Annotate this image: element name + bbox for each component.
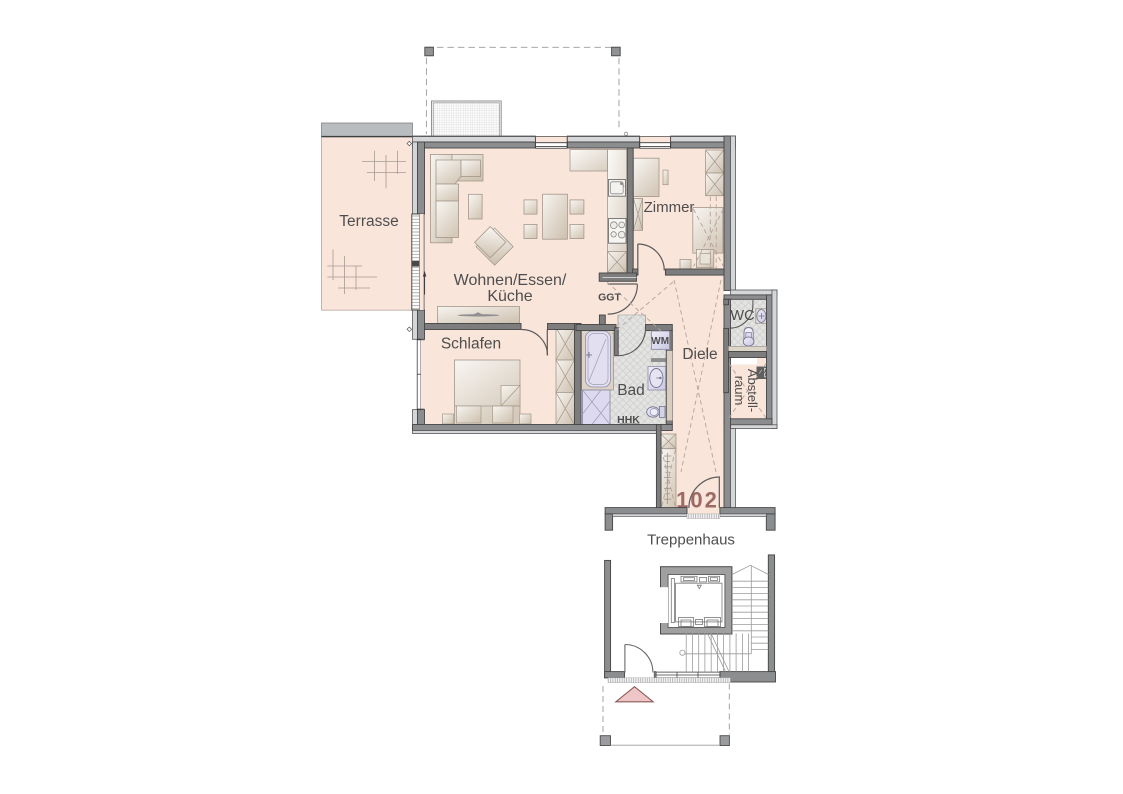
svg-text:Küche: Küche: [487, 288, 532, 305]
svg-text:WC: WC: [730, 308, 754, 324]
svg-text:Diele: Diele: [682, 346, 717, 363]
svg-text:Zimmer: Zimmer: [644, 199, 695, 216]
svg-text:Wohnen/Essen/: Wohnen/Essen/: [454, 272, 567, 289]
svg-text:raum: raum: [732, 376, 747, 406]
svg-text:WM: WM: [651, 336, 669, 347]
svg-text:GGT: GGT: [598, 292, 621, 304]
svg-text:Schlafen: Schlafen: [441, 336, 501, 353]
svg-text:Terrasse: Terrasse: [339, 213, 398, 230]
svg-text:Bad: Bad: [617, 382, 645, 399]
svg-text:Treppenhaus: Treppenhaus: [647, 532, 735, 549]
svg-text:HHK: HHK: [617, 414, 640, 426]
